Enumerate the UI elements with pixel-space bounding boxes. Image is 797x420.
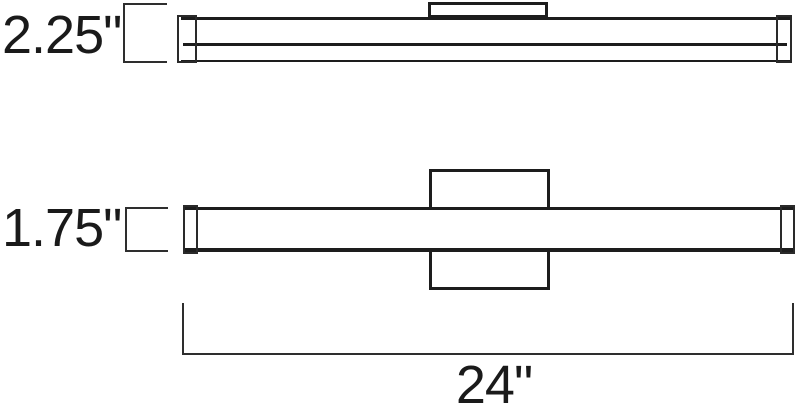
- height-bracket-top-line: [125, 207, 168, 209]
- front-view-fixture-body: [183, 207, 795, 252]
- side-view-endcap-left: [177, 15, 197, 63]
- height-bracket-vertical-line: [125, 207, 127, 252]
- depth-dimension-label: 2.25": [2, 8, 121, 62]
- depth-bracket-top-line: [123, 3, 167, 5]
- width-bracket-right-tick: [792, 303, 794, 355]
- depth-bracket-bottom-line: [123, 61, 167, 63]
- side-view-fixture-body: [181, 17, 791, 62]
- height-dimension-label: 1.75": [2, 201, 121, 255]
- dimension-diagram: 2.25" 1.75" 24": [0, 0, 797, 420]
- front-view-endcap-right: [780, 205, 795, 254]
- front-view-endcap-left: [183, 205, 198, 254]
- side-view-lens-seam-line: [183, 43, 787, 46]
- width-dimension-label: 24": [188, 358, 797, 412]
- width-bracket-left-tick: [182, 303, 184, 355]
- side-view-endcap-right: [776, 15, 792, 63]
- side-view-mounting-canopy: [428, 2, 548, 18]
- height-bracket-bottom-line: [125, 250, 168, 252]
- depth-bracket-vertical-line: [123, 3, 125, 63]
